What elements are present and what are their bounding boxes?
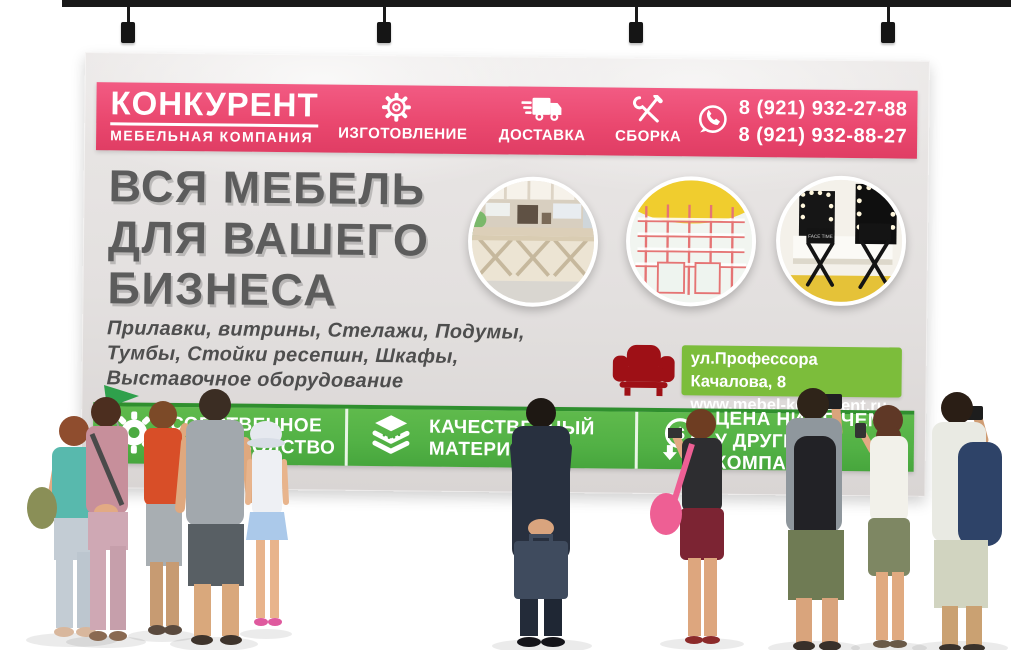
person-man-black-backpack <box>768 388 860 650</box>
person-man-blue-backpack <box>912 392 1008 650</box>
scene: КОНКУРЕНТ МЕБЕЛЬНАЯ КОМПАНИЯ <box>0 0 1011 650</box>
person-woman-pink-bag <box>650 409 744 650</box>
person-businessman <box>492 398 592 650</box>
audience <box>0 0 1011 650</box>
person-woman-white-top <box>851 405 927 650</box>
